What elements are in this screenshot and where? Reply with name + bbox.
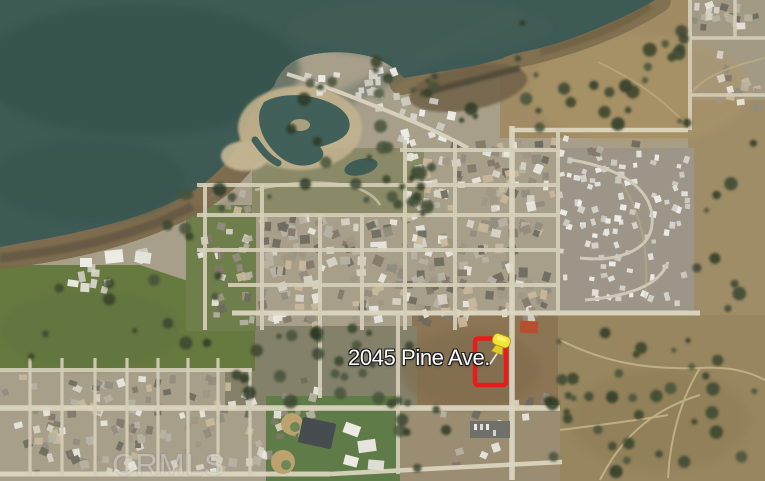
address-label: 2045 Pine Ave. [348,346,508,370]
satellite-map[interactable]: 2045 Pine Ave. CRMLS [0,0,765,481]
crmls-watermark: CRMLS [112,447,226,481]
map-canvas [0,0,765,481]
red-roof-building [520,321,539,334]
